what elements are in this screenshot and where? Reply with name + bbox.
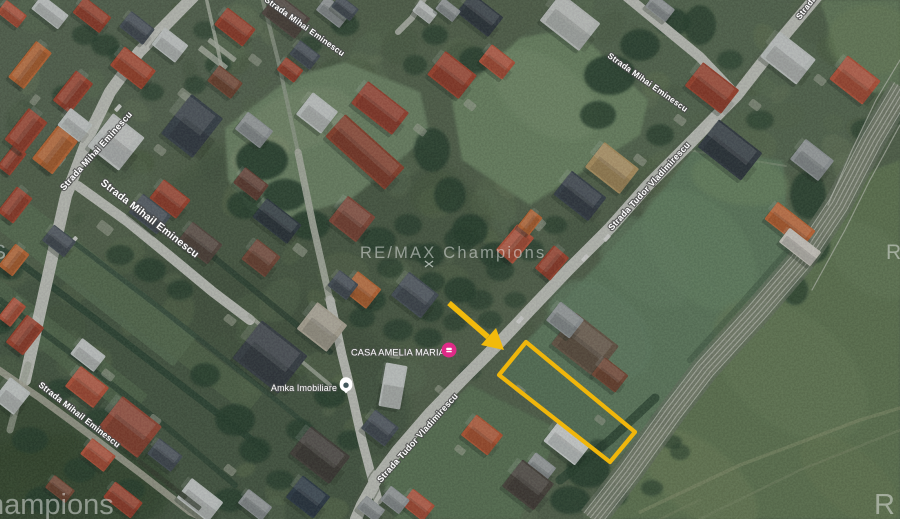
svg-text:CASA AMELIA MARIA: CASA AMELIA MARIA — [351, 348, 446, 358]
svg-text:Amka Imobiliare: Amka Imobiliare — [271, 383, 337, 393]
svg-text:R: R — [874, 489, 895, 519]
svg-text:S: S — [0, 241, 6, 264]
svg-text:RE/MAX Champions: RE/MAX Champions — [360, 244, 547, 262]
svg-text:R: R — [886, 241, 900, 264]
svg-text:hampions: hampions — [0, 489, 114, 519]
